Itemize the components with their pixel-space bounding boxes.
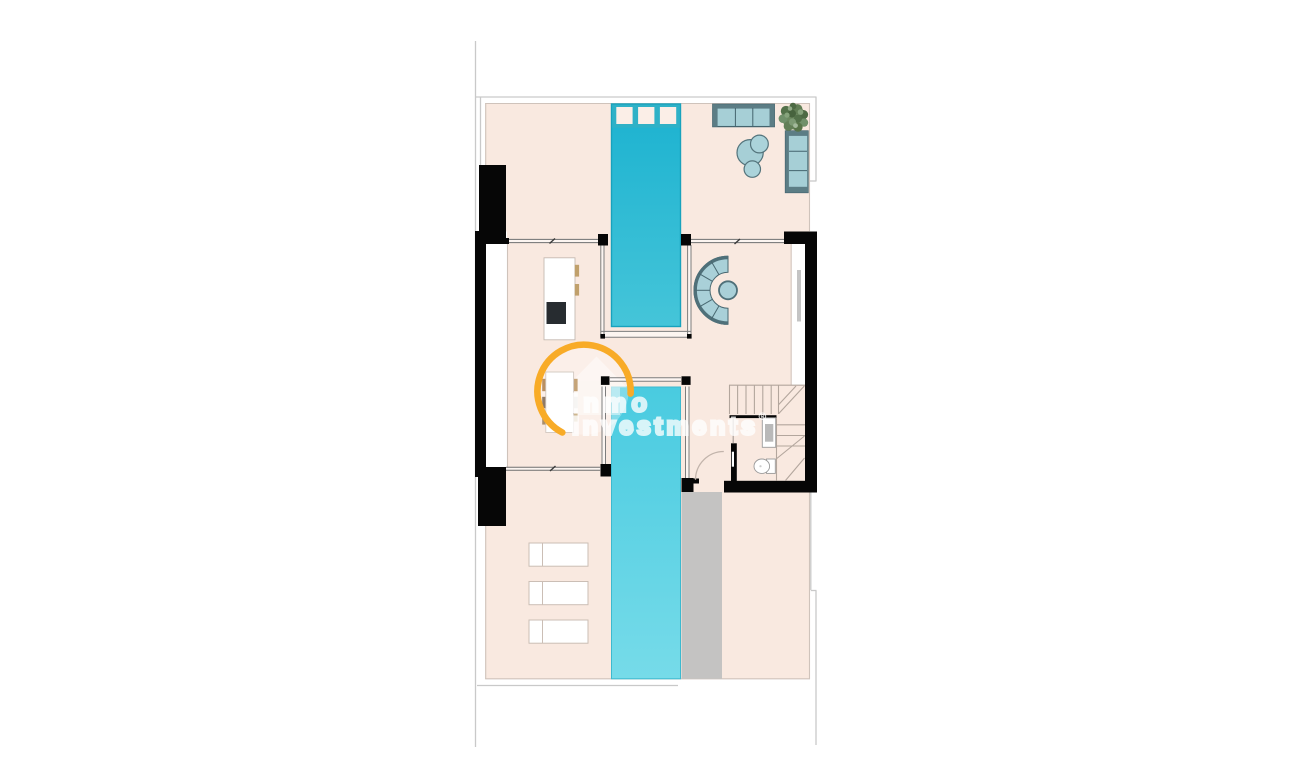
svg-text:Investments: Investments: [572, 413, 759, 441]
